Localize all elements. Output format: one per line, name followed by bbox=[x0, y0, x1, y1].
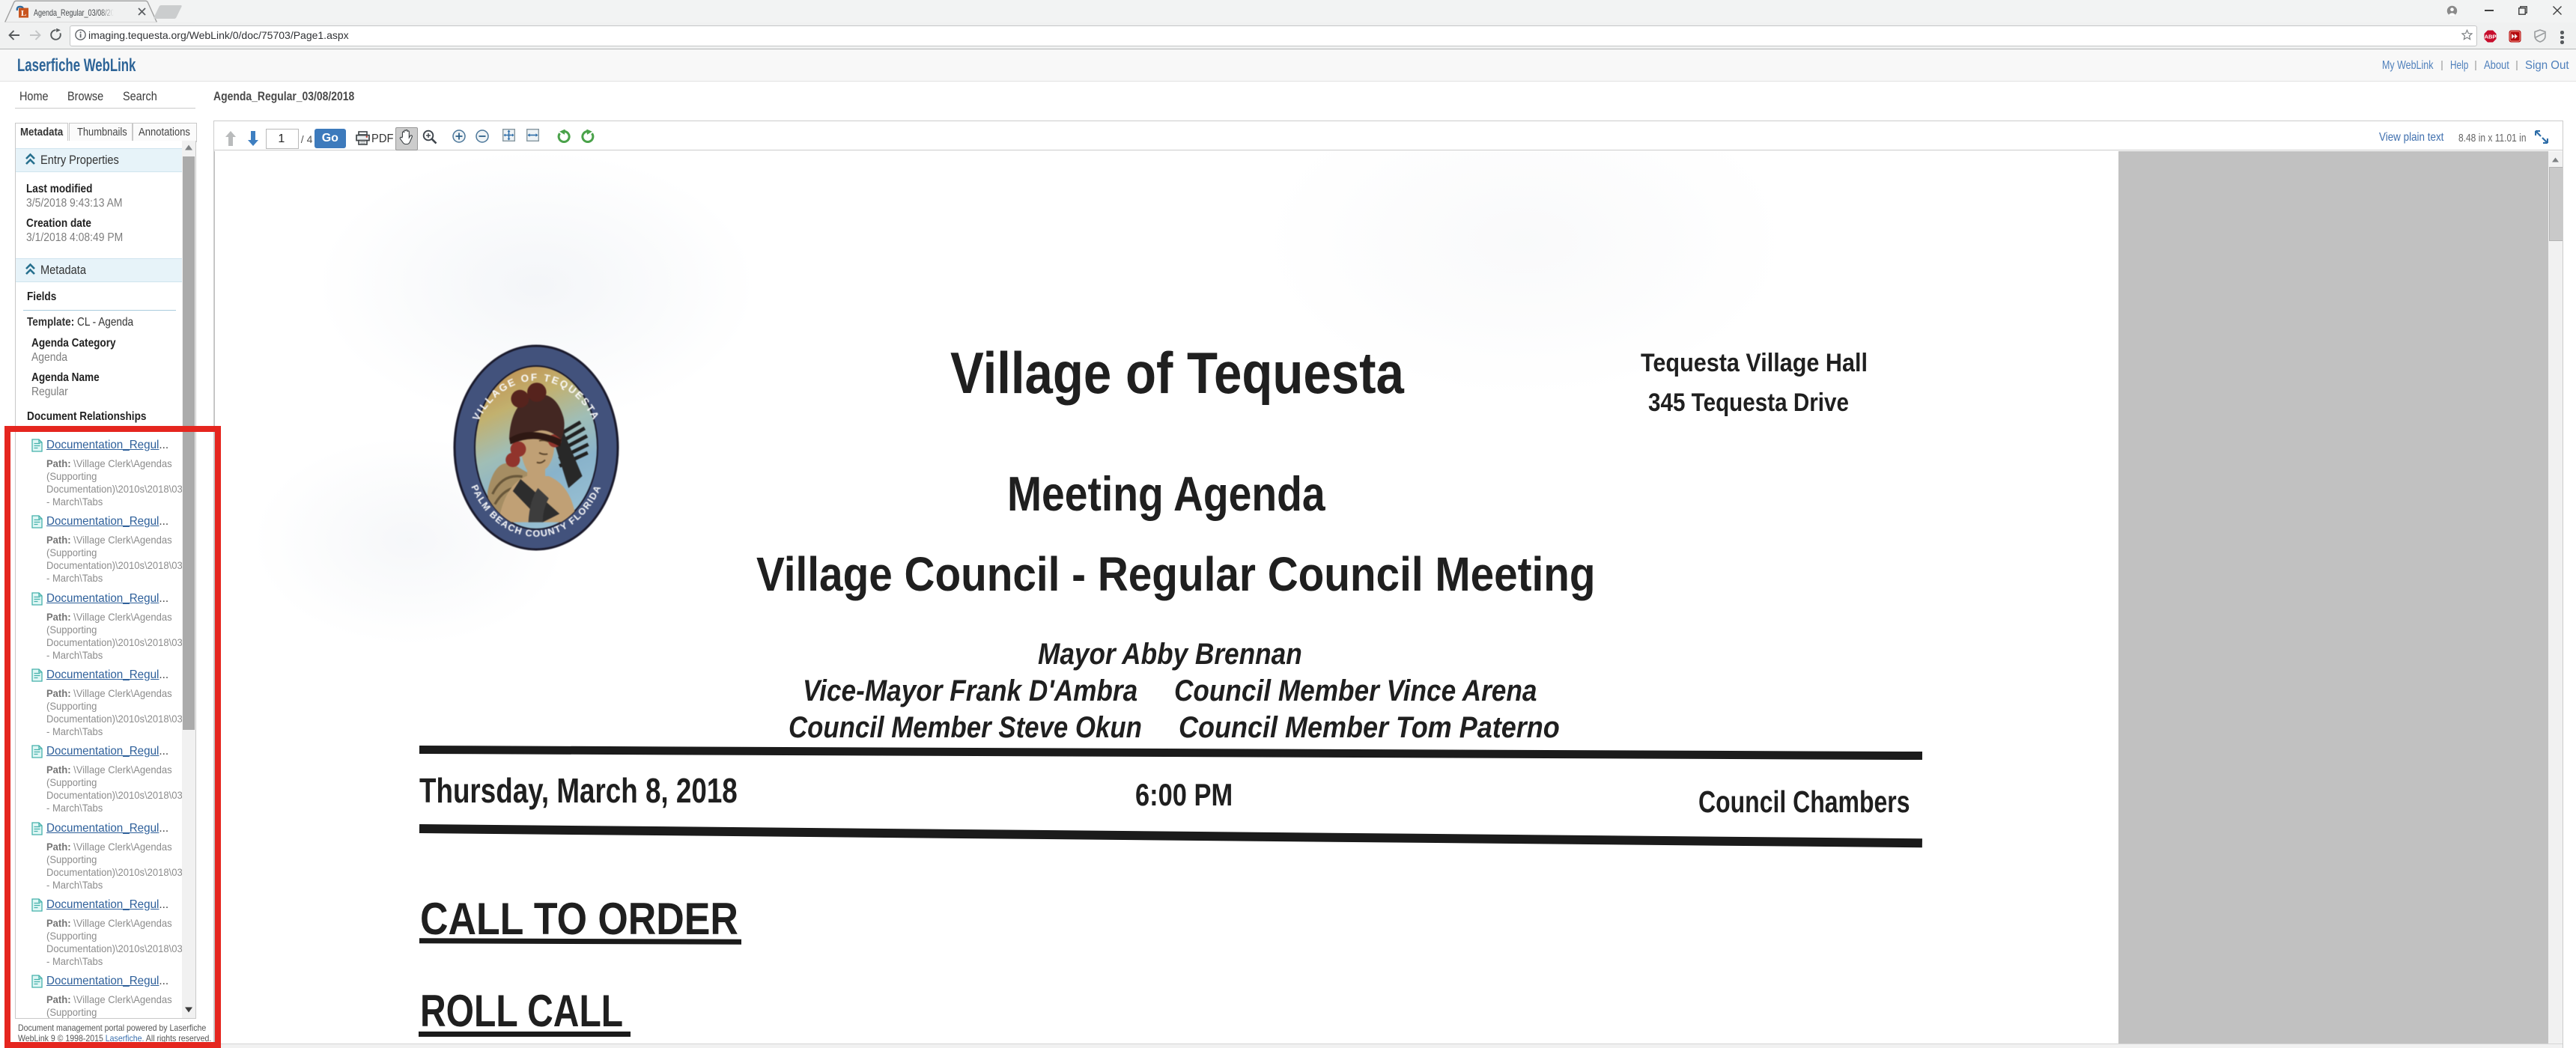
svg-text:ABP: ABP bbox=[2485, 34, 2497, 40]
svg-text:L: L bbox=[21, 9, 26, 18]
